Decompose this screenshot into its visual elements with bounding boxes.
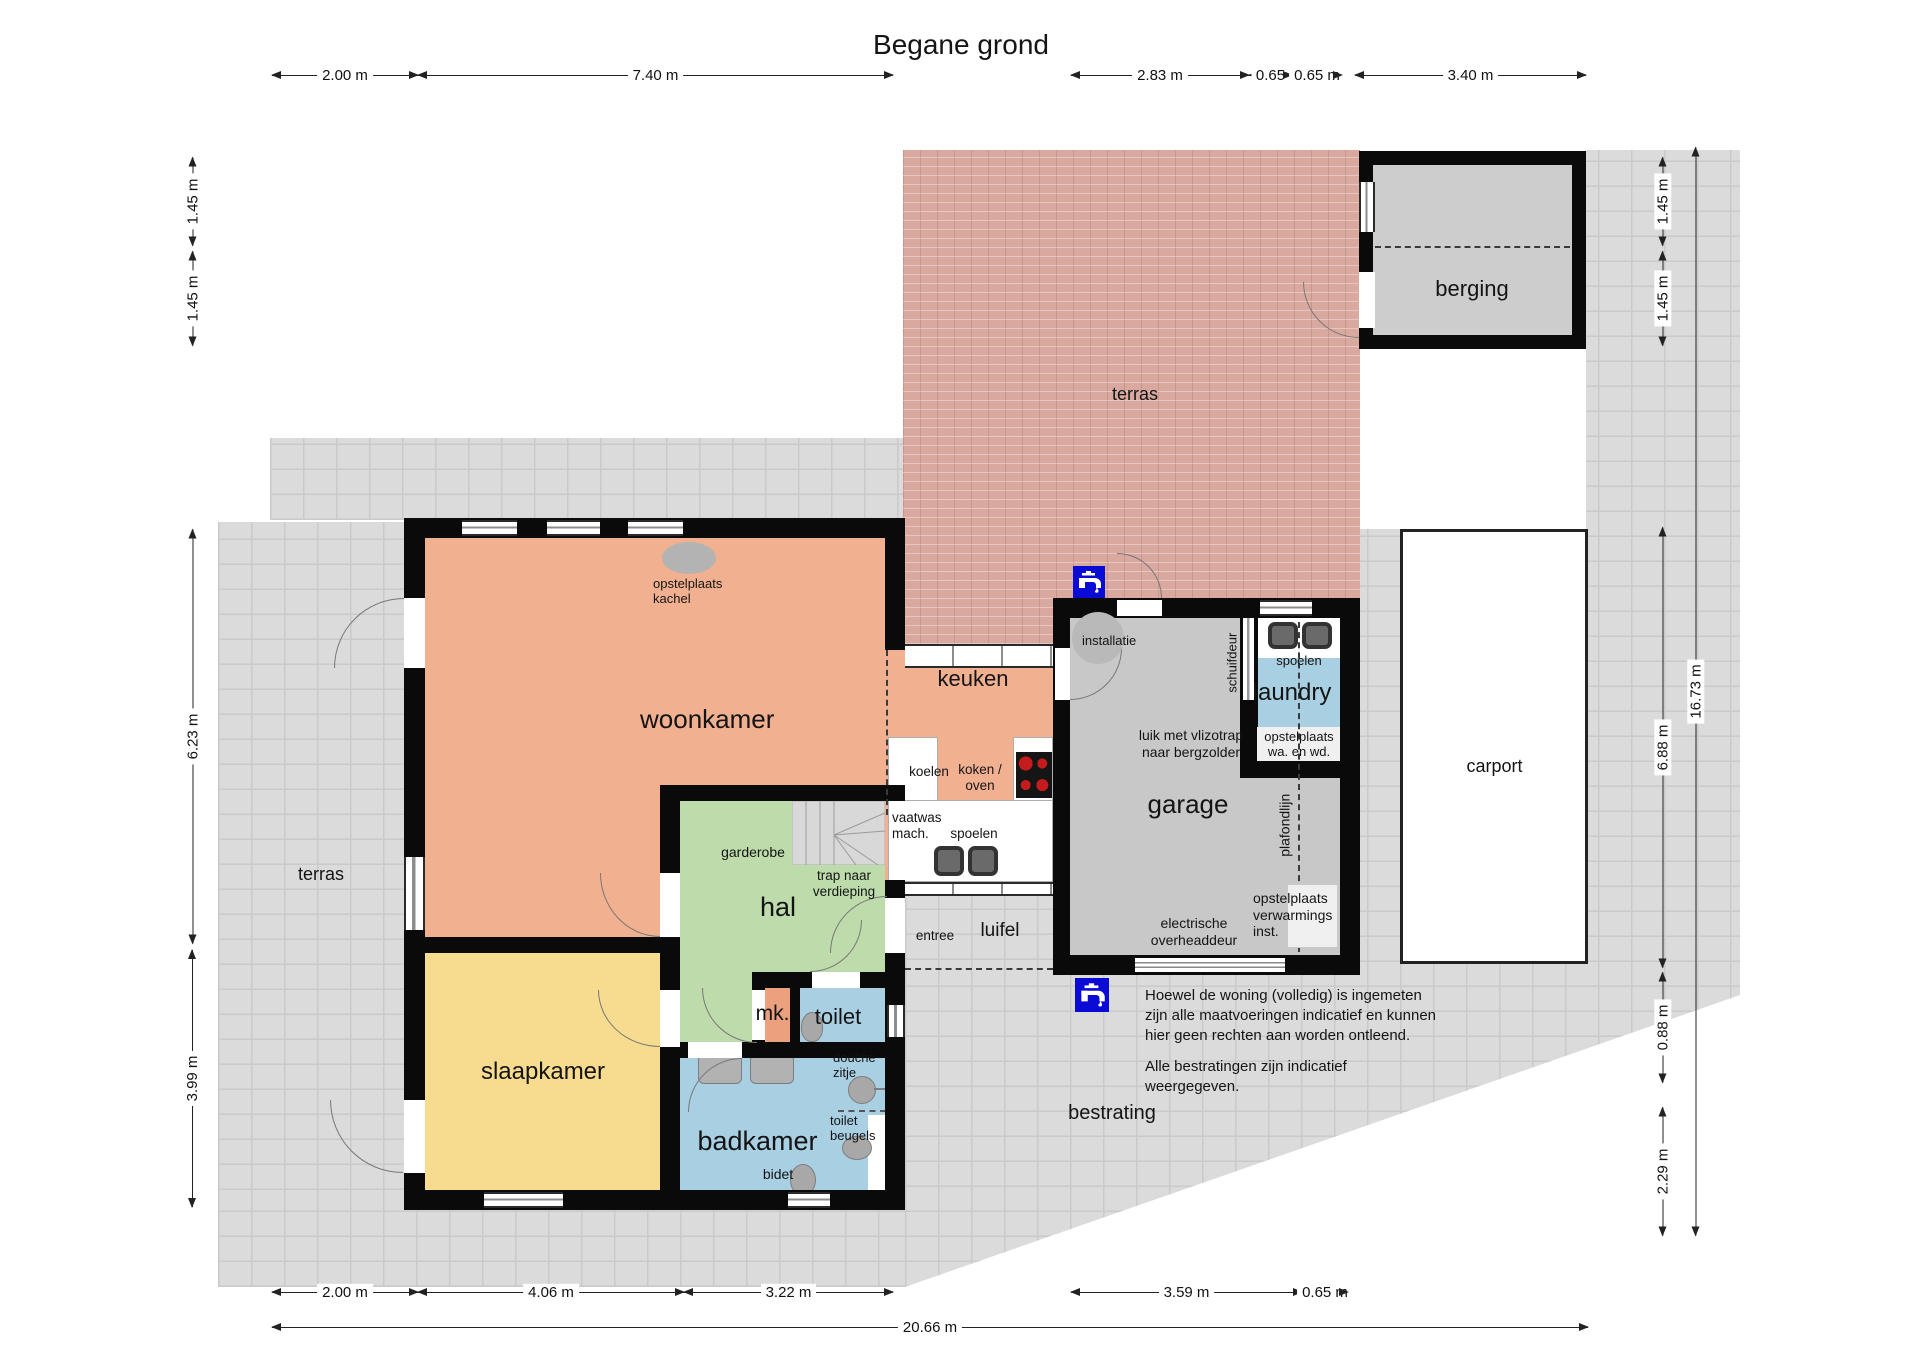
area-label-entree: entree (910, 928, 960, 944)
annotation-garderobe: garderobe (718, 844, 788, 861)
dimension-label: 3.59 m (1159, 1284, 1215, 1301)
window-woonkamer (462, 520, 517, 536)
woonkamer-keuken-dashed-line (886, 650, 888, 815)
page-title: Begane grond (811, 28, 1111, 61)
kitchen-sink-icon (934, 846, 964, 876)
dimension-label: 6.23 m (184, 709, 201, 765)
annotation-wa-wd: opstelplaats wa. en wd. (1257, 729, 1341, 760)
toilet-door-opening (812, 972, 860, 988)
dimension-line-right: 6.88 m (1663, 528, 1664, 968)
annotation-bidet: bidet (748, 1166, 808, 1183)
laundry-wall-bottom (1240, 760, 1340, 778)
berging-ceiling-line (1375, 246, 1570, 248)
room-label-keuken: keuken (920, 666, 1026, 692)
berging-door-opening (1359, 272, 1375, 328)
annotation-plafondlijn: plafondlijn (1277, 783, 1294, 867)
kitchen-sink-icon (968, 846, 998, 876)
water-tap-icon (1075, 978, 1109, 1012)
dimension-label: 16.73 m (1687, 659, 1704, 723)
dimension-line-right: 1.45 m (1663, 158, 1664, 246)
annotation-trap: trap naar verdieping (808, 868, 880, 900)
water-tap-icon (1073, 566, 1105, 598)
dimension-label: 1.45 m (184, 271, 201, 327)
annotation-luik: luik met vlizotrap naar bergzolder (1132, 727, 1250, 760)
room-label-badkamer: badkamer (690, 1126, 825, 1158)
dimension-line-bottom: 4.06 m (418, 1292, 684, 1293)
dimension-line-bottom: 3.22 m (684, 1292, 893, 1293)
room-label-woonkamer: woonkamer (640, 704, 770, 735)
laundry-sink-icon (1302, 622, 1332, 649)
annotation-installatie: installatie (1082, 633, 1158, 648)
annotation-spoelen-laundry: spoelen (1270, 653, 1328, 668)
entree-door-opening (885, 898, 905, 953)
room-label-carport: carport (1457, 756, 1532, 777)
badkamer-door-opening (688, 1042, 742, 1058)
area-label-terras-top: terras (1104, 384, 1166, 405)
window-keuken-terras (905, 644, 1053, 668)
dimension-line-top: 0.65 (1249, 75, 1292, 76)
room-label-garage: garage (1138, 789, 1238, 820)
dimension-line-top: 3.40 m (1355, 75, 1586, 76)
dimension-label: 2.00 m (317, 1284, 373, 1301)
dimension-label: 4.06 m (523, 1284, 579, 1301)
area-label-luifel: luifel (974, 920, 1026, 942)
dimension-line-top: 7.40 m (418, 75, 893, 76)
dimension-label: 7.40 m (628, 67, 684, 84)
dimension-line-left: 3.99 m (192, 950, 193, 1207)
dimension-line-bottom: 0.65 m (1302, 1292, 1348, 1293)
window-woonkamer (628, 520, 683, 536)
dimension-line-bottom: 3.59 m (1071, 1292, 1302, 1293)
bathroom-sink-icon (750, 1054, 794, 1084)
kachel-ellipse (662, 542, 716, 574)
room-label-toilet: toilet (803, 1004, 873, 1030)
garage-keuken-door-opening (1055, 648, 1070, 700)
dimension-line-left: 1.45 m (193, 158, 194, 246)
shower-dashed-line (838, 1110, 886, 1112)
room-berging (1373, 165, 1572, 335)
paving-bottom-strip (218, 1205, 906, 1287)
dimension-label: 2.83 m (1132, 67, 1188, 84)
dimension-line-bottom: 2.00 m (272, 1292, 418, 1293)
window-slaapkamer-bottom (484, 1192, 563, 1208)
dimension-label: 0.65 (1251, 67, 1290, 84)
note-measure: Hoewel de woning (volledig) is ingemeten… (1145, 986, 1439, 1045)
dimension-label: 3.99 m (184, 1051, 201, 1107)
dimension-label: 3.22 m (761, 1284, 817, 1301)
hal-woonkamer-door-opening (660, 873, 680, 937)
laundry-window (1260, 600, 1312, 616)
room-label-slaapkamer: slaapkamer (478, 1058, 608, 1086)
annotation-spoelen-keuken: spoelen (946, 826, 1002, 842)
dimension-line-left: 6.23 m (193, 530, 194, 944)
dimension-line-right-total: 16.73 m (1696, 148, 1697, 1236)
wall-pillar-keuken (885, 538, 905, 650)
dimension-label: 20.66 m (898, 1319, 962, 1336)
annotation-verwarming: opstelplaats verwarmings inst. (1253, 890, 1337, 940)
room-label-mk: mk. (745, 1002, 800, 1027)
door-opening-slaapkamer-terras (404, 1100, 425, 1173)
window-woonkamer-left (404, 857, 425, 930)
annotation-opstelplaats-kachel: opstelplaats kachel (653, 576, 735, 607)
annotation-schuifdeur: schuifdeur (1224, 620, 1239, 706)
dimension-line-top: 0.65 m (1292, 75, 1342, 76)
wall-woonkamer-hal (660, 785, 905, 801)
hal-slaapkamer-door-opening (660, 990, 680, 1047)
door-opening-woonkamer-terras (404, 598, 425, 668)
annotation-vaatwas: vaatwas mach. (892, 810, 954, 842)
annotation-overheaddeur: electrische overheaddeur (1145, 915, 1243, 948)
cooktop-icon (1016, 752, 1052, 798)
dimension-label: 6.88 m (1654, 720, 1671, 776)
dimension-line-right: 2.29 m (1663, 1108, 1664, 1236)
annotation-douche-zitje: douche zitje (833, 1050, 889, 1081)
dimension-line-right: 0.88 m (1663, 973, 1664, 1083)
wall-woonkamer-slaapkamer (404, 937, 680, 953)
dimension-line-left: 1.45 m (193, 252, 194, 346)
area-label-terras-left: terras (290, 864, 352, 885)
dimension-label: 1.45 m (184, 174, 201, 230)
dimension-label: 2.00 m (317, 67, 373, 84)
dimension-line-top: 2.83 m (1071, 75, 1249, 76)
annotation-koken-oven: koken / oven (950, 762, 1010, 794)
room-label-berging: berging (1428, 276, 1516, 302)
window-badkamer-bottom (788, 1192, 830, 1208)
dimension-label: 1.45 m (1654, 271, 1671, 327)
dimension-line-top: 2.00 m (272, 75, 418, 76)
paving-top-band (270, 438, 905, 520)
laundry-sink-icon (1268, 622, 1298, 649)
dimension-label: 0.65 m (1297, 1284, 1353, 1301)
dimension-label: 0.65 m (1289, 67, 1345, 84)
dimension-label: 3.40 m (1443, 67, 1499, 84)
dimension-label: 2.29 m (1654, 1144, 1671, 1200)
dimension-line-right: 1.45 m (1663, 252, 1664, 346)
note-paving: Alle bestratingen zijn indicatief weerge… (1145, 1057, 1439, 1097)
disclaimer-notes: Hoewel de woning (volledig) is ingemeten… (1145, 986, 1439, 1109)
dimension-line-total: 20.66 m (272, 1327, 1588, 1328)
garage-overhead-door (1135, 958, 1285, 972)
garage-terras-door-opening (1117, 600, 1162, 616)
luifel-dashed-line (905, 968, 1053, 970)
carport-area (1400, 529, 1588, 964)
window-toilet (887, 1005, 905, 1037)
dimension-label: 1.45 m (1654, 174, 1671, 230)
room-label-laundry: laundry (1244, 679, 1340, 707)
window-woonkamer (547, 520, 600, 536)
berging-window (1359, 182, 1375, 232)
dimension-label: 0.88 m (1654, 1000, 1671, 1056)
garage-wall-right (1340, 598, 1360, 975)
annotation-toilet-beugels: toilet beugels (830, 1113, 892, 1144)
floorplan-canvas: Begane grond woonkamer keuken hal slaapk… (0, 0, 1920, 1358)
stairs-icon (792, 801, 885, 865)
window-keuken-luifel (905, 882, 1053, 896)
